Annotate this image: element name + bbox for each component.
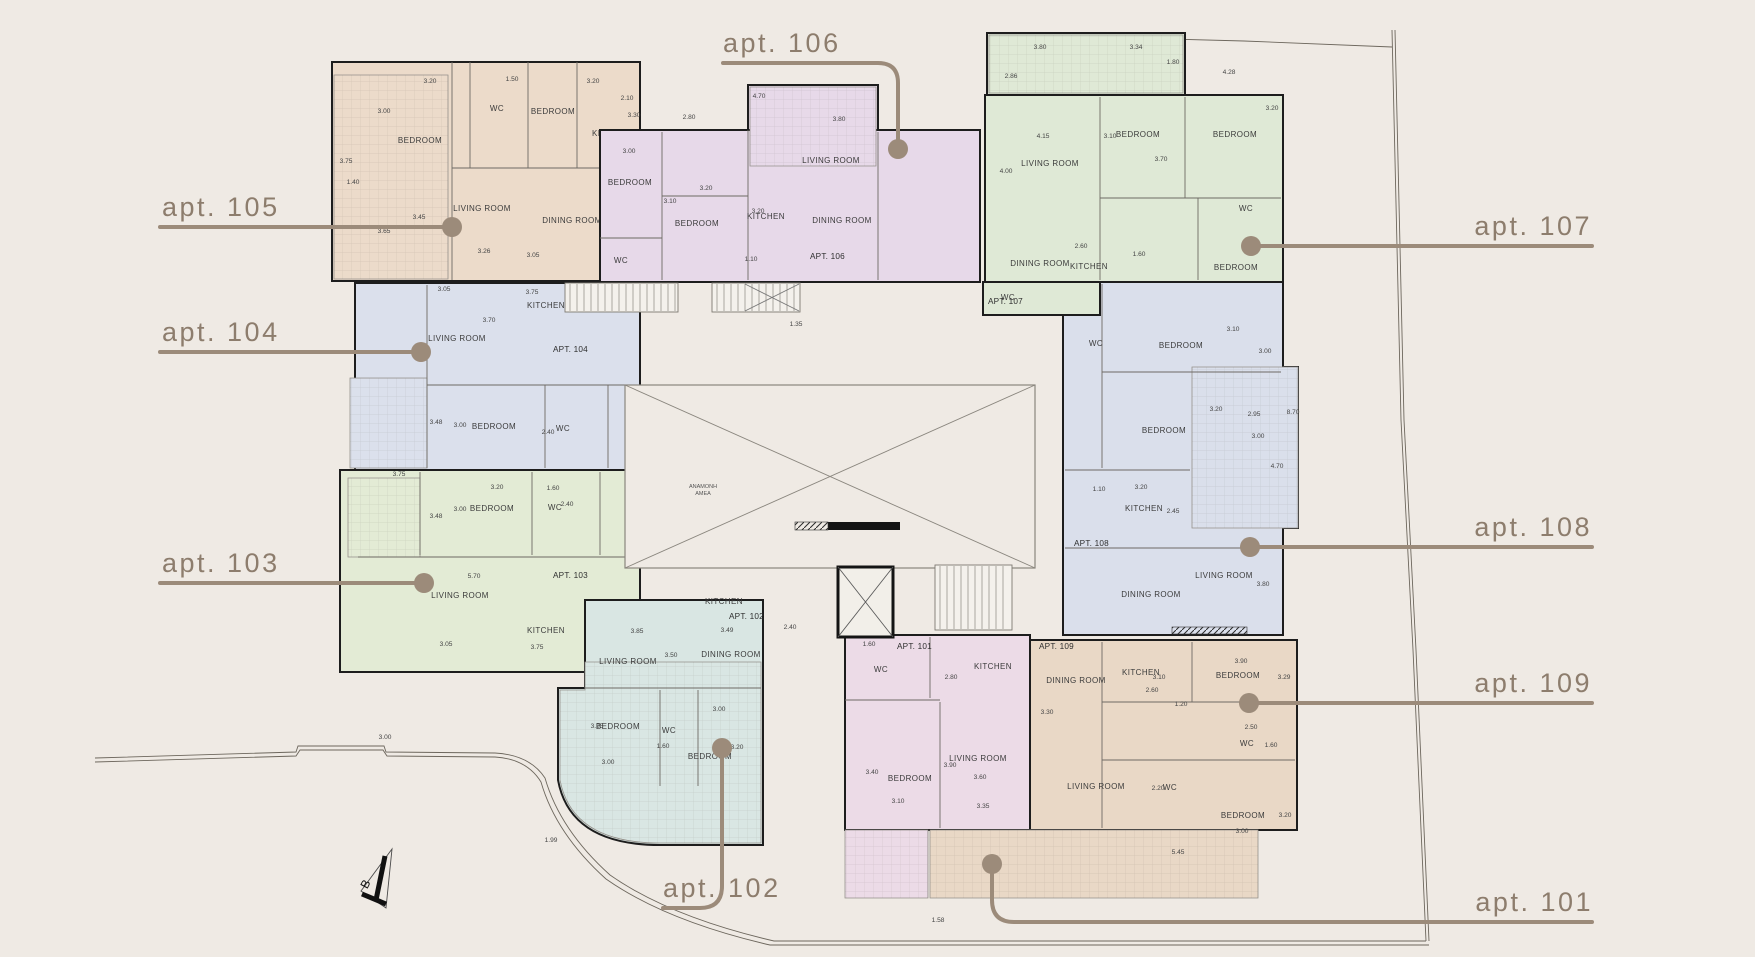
callout-label-apt-104: apt. 104	[162, 317, 280, 347]
callout-dot	[982, 854, 1002, 874]
stair-outline	[935, 565, 1012, 630]
dimension-label: 3.75	[531, 644, 544, 651]
dimension-label: 3.00	[379, 734, 392, 741]
dimension-label: 3.00	[602, 759, 615, 766]
apartment-108: WCBEDROOMBEDROOMKITCHENLIVING ROOMDINING…	[1063, 282, 1300, 635]
dimension-label: 2.95	[1248, 411, 1261, 418]
dimension-label: 4.70	[753, 93, 766, 100]
site-boundary-line	[1395, 30, 1429, 941]
dimension-label: 1.50	[506, 76, 519, 83]
apartment-tag-108: APT. 108	[1074, 539, 1109, 548]
apartment-105-balcony-hatch	[334, 75, 448, 279]
room-label: BEDROOM	[1213, 130, 1257, 139]
apartment-tag-109: APT. 109	[1039, 642, 1074, 651]
apartment-104-balcony-hatch	[350, 378, 427, 468]
room-label: LIVING ROOM	[428, 334, 486, 343]
hatched-wall-segment	[795, 522, 828, 530]
dimension-label: 1.60	[1133, 251, 1146, 258]
dimension-label: 3.45	[413, 214, 426, 221]
dimension-label: 3.20	[1266, 105, 1279, 112]
dimension-label: 3.00	[454, 422, 467, 429]
dimension-label: 2.80	[683, 114, 696, 121]
dimension-label: 2.80	[945, 674, 958, 681]
room-label: DINING ROOM	[701, 650, 761, 659]
stair-flight	[712, 283, 800, 312]
room-label: WC	[1239, 204, 1253, 213]
callout-dot	[411, 342, 431, 362]
dimension-label: 3.20	[752, 208, 765, 215]
dimension-label: 2.40	[561, 501, 574, 508]
dimension-label: 3.10	[1153, 674, 1166, 681]
apartment-106-balcony-hatch	[750, 87, 876, 166]
room-label: KITCHEN	[527, 626, 565, 635]
dimension-label: 3.26	[478, 248, 491, 255]
room-label: WC	[1163, 783, 1177, 792]
dimension-label: 3.20	[491, 484, 504, 491]
apartment-102: KITCHENLIVING ROOMDINING ROOMBEDROOMWCBE…	[558, 597, 797, 845]
room-label: LIVING ROOM	[599, 657, 657, 666]
dimension-label: 1.60	[657, 743, 670, 750]
dimension-label: 3.00	[1259, 348, 1272, 355]
callout-label-apt-108: apt. 108	[1474, 512, 1592, 542]
dimension-label: 3.10	[1227, 326, 1240, 333]
apartment-109-block	[1030, 640, 1297, 830]
apartment-tag-104: APT. 104	[553, 345, 588, 354]
callout-dot	[1240, 537, 1260, 557]
dimension-label: 3.90	[1235, 658, 1248, 665]
dimension-label: 1.40	[347, 179, 360, 186]
dimension-label: 3.00	[713, 706, 726, 713]
dimension-label: 1.60	[1265, 742, 1278, 749]
dimension-label: 3.00	[378, 108, 391, 115]
dimension-label: 5.45	[1172, 849, 1185, 856]
apartment-107-balcony-hatch	[989, 35, 1183, 93]
dimension-label: 3.70	[483, 317, 496, 324]
room-label: WC	[614, 256, 628, 265]
dimension-label: 1.20	[1175, 701, 1188, 708]
callout-dot	[414, 573, 434, 593]
dimension-label: 2.45	[1167, 508, 1180, 515]
room-label: LIVING ROOM	[453, 204, 511, 213]
callout-label-apt-102: apt. 102	[663, 873, 781, 903]
dimension-label: 3.50	[665, 652, 678, 659]
dimension-label: 3.75	[340, 158, 353, 165]
dimension-label: 3.60	[974, 774, 987, 781]
callout-dot	[1241, 236, 1261, 256]
room-label: DINING ROOM	[812, 216, 872, 225]
callout-apt-107: apt. 107	[1241, 211, 1592, 256]
room-label: DINING ROOM	[1046, 676, 1106, 685]
callout-dot	[712, 738, 732, 758]
apartment-105: BEDROOMWCBEDROOMKITCHENLIVING ROOMDINING…	[332, 62, 641, 281]
room-label: BEDROOM	[608, 178, 652, 187]
dimension-label: 3.70	[1155, 156, 1168, 163]
dimension-label: 3.05	[440, 641, 453, 648]
courtyard-void	[625, 385, 1035, 568]
stair-flight	[935, 565, 1012, 630]
room-label: WC	[490, 104, 504, 113]
dimension-label: 1.35	[790, 321, 803, 328]
dimension-label: 1.60	[863, 641, 876, 648]
stair-flight	[565, 283, 678, 312]
room-label: BEDROOM	[675, 219, 719, 228]
room-label: DINING ROOM	[1010, 259, 1070, 268]
wall-segment	[828, 522, 900, 530]
waiting-area-label: ΑΝΑΜΟΝΗ	[689, 484, 717, 490]
room-label: BEDROOM	[1116, 130, 1160, 139]
room-label: LIVING ROOM	[1195, 571, 1253, 580]
dimension-label: 1.99	[545, 837, 558, 844]
dimension-label: 3.90	[944, 762, 957, 769]
dimension-label: 3.00	[1252, 433, 1265, 440]
apartment-109-balcony-hatch	[930, 830, 1258, 898]
dimension-label: 3.10	[892, 798, 905, 805]
dimension-label: 3.80	[833, 116, 846, 123]
room-label: BEDROOM	[398, 136, 442, 145]
dimension-label: 2.86	[1005, 73, 1018, 80]
room-label: BEDROOM	[470, 504, 514, 513]
callout-dot	[442, 217, 462, 237]
apartment-tag-106: APT. 106	[810, 252, 845, 261]
room-label: KITCHEN	[1125, 504, 1163, 513]
dimension-label: 3.25	[591, 723, 604, 730]
dimension-label: 2.40	[784, 624, 797, 631]
room-label: DINING ROOM	[542, 216, 602, 225]
room-label: BEDROOM	[1159, 341, 1203, 350]
room-label: KITCHEN	[705, 597, 743, 606]
callout-label-apt-101: apt. 101	[1475, 887, 1593, 917]
dimension-label: 3.40	[866, 769, 879, 776]
dimension-label: 4.70	[1271, 463, 1284, 470]
dimension-label: 3.20	[731, 744, 744, 751]
dimension-label: 3.80	[1034, 44, 1047, 51]
north-label: B	[357, 877, 373, 891]
dimension-label: 3.49	[721, 627, 734, 634]
dimension-label: 3.00	[1236, 828, 1249, 835]
dimension-label: 3.34	[1130, 44, 1143, 51]
dimension-label: 2.60	[1146, 687, 1159, 694]
dimension-label: 2.60	[1075, 243, 1088, 250]
room-label: BEDROOM	[1221, 811, 1265, 820]
dimension-label: 2.40	[542, 429, 555, 436]
dimension-label: 3.05	[527, 252, 540, 259]
room-label: LIVING ROOM	[431, 591, 489, 600]
apartment-tag-102: APT. 102	[729, 612, 764, 621]
room-label: BEDROOM	[1214, 263, 1258, 272]
room-label: WC	[1240, 739, 1254, 748]
dimension-label: 3.00	[454, 506, 467, 513]
dimension-label: 2.20	[1152, 785, 1165, 792]
callout-dot	[1239, 693, 1259, 713]
dimension-label: 2.50	[1245, 724, 1258, 731]
room-label: BEDROOM	[472, 422, 516, 431]
apartment-103-balcony-hatch	[348, 478, 420, 557]
apartment-101-balcony-hatch	[845, 830, 928, 898]
dimension-label: 3.29	[1278, 674, 1291, 681]
dimension-label: 1.80	[1167, 59, 1180, 66]
room-label: WC	[662, 726, 676, 735]
compass: B	[357, 849, 392, 908]
dimension-label: 3.20	[1279, 812, 1292, 819]
dimension-label: 3.10	[1104, 133, 1117, 140]
dimension-label: 3.80	[1257, 581, 1270, 588]
room-label: WC	[874, 665, 888, 674]
floor-plan-svg: 4.283.001.991.581.351.551.251.351.25BEDR…	[0, 0, 1755, 957]
dimension-label: 3.85	[631, 628, 644, 635]
dimension-label: 3.75	[526, 289, 539, 296]
dimension-label: 1.10	[1093, 486, 1106, 493]
apartment-tag-103: APT. 103	[553, 571, 588, 580]
dimension-label: 3.10	[664, 198, 677, 205]
callout-label-apt-107: apt. 107	[1474, 211, 1592, 241]
room-label: BEDROOM	[888, 774, 932, 783]
hatched-wall-segment	[1172, 627, 1247, 634]
dimension-label: 2.10	[621, 95, 634, 102]
north-arrow-base	[362, 894, 386, 904]
room-label: KITCHEN	[527, 301, 565, 310]
dimension-label: 3.48	[430, 419, 443, 426]
apartment-106: BEDROOMBEDROOMWCKITCHENLIVING ROOMDINING…	[600, 85, 980, 282]
dimension-label: 3.20	[1135, 484, 1148, 491]
north-arrow-bar	[376, 856, 385, 900]
dimension-label: 3.20	[587, 78, 600, 85]
callout-label-apt-109: apt. 109	[1474, 668, 1592, 698]
dimension-label: 8.70	[1287, 409, 1300, 416]
callout-label-apt-103: apt. 103	[162, 548, 280, 578]
dimension-label: 3.30	[628, 112, 641, 119]
room-label: BEDROOM	[1142, 426, 1186, 435]
waiting-area-label: ΑΜΕΑ	[695, 491, 711, 497]
room-label: KITCHEN	[974, 662, 1012, 671]
room-label: BEDROOM	[531, 107, 575, 116]
dimension-label: 3.48	[430, 513, 443, 520]
callout-label-apt-105: apt. 105	[162, 192, 280, 222]
apartment-tag-107: APT. 107	[988, 297, 1023, 306]
room-label: DINING ROOM	[1121, 590, 1181, 599]
room-label: WC	[556, 424, 570, 433]
dimension-label: 3.20	[424, 78, 437, 85]
dimension-label: 5.70	[468, 573, 481, 580]
dimension-label: 4.00	[1000, 168, 1013, 175]
dimension-label: 1.10	[745, 256, 758, 263]
elevator-shaft	[838, 567, 893, 637]
room-label: KITCHEN	[1070, 262, 1108, 271]
room-label: BEDROOM	[1216, 671, 1260, 680]
room-label: LIVING ROOM	[949, 754, 1007, 763]
dimension-label: 3.75	[393, 471, 406, 478]
apartment-107: LIVING ROOMBEDROOMBEDROOMWCBEDROOMKITCHE…	[983, 33, 1283, 315]
apartment-tag-101: APT. 101	[897, 642, 932, 651]
floor-plan-canvas: 4.283.001.991.581.351.551.251.351.25BEDR…	[0, 0, 1755, 957]
dimension-label: 3.20	[700, 185, 713, 192]
dimension-label: 3.65	[378, 228, 391, 235]
room-label: LIVING ROOM	[1021, 159, 1079, 168]
room-label: LIVING ROOM	[802, 156, 860, 165]
dimension-label: 3.30	[1041, 709, 1054, 716]
callout-label-apt-106: apt. 106	[723, 28, 841, 58]
callout-dot	[888, 139, 908, 159]
dimension-label: 3.05	[438, 286, 451, 293]
dimension-label: 3.20	[1210, 406, 1223, 413]
room-label: LIVING ROOM	[1067, 782, 1125, 791]
dimension-label: 4.28	[1223, 69, 1236, 76]
site-boundary-line	[1392, 30, 1426, 941]
apartment-108-balcony-hatch	[1192, 367, 1298, 528]
dimension-label: 3.35	[977, 803, 990, 810]
dimension-label: 1.58	[932, 917, 945, 924]
dimension-label: 3.00	[623, 148, 636, 155]
dimension-label: 1.60	[547, 485, 560, 492]
dimension-label: 4.15	[1037, 133, 1050, 140]
room-label: WC	[1089, 339, 1103, 348]
